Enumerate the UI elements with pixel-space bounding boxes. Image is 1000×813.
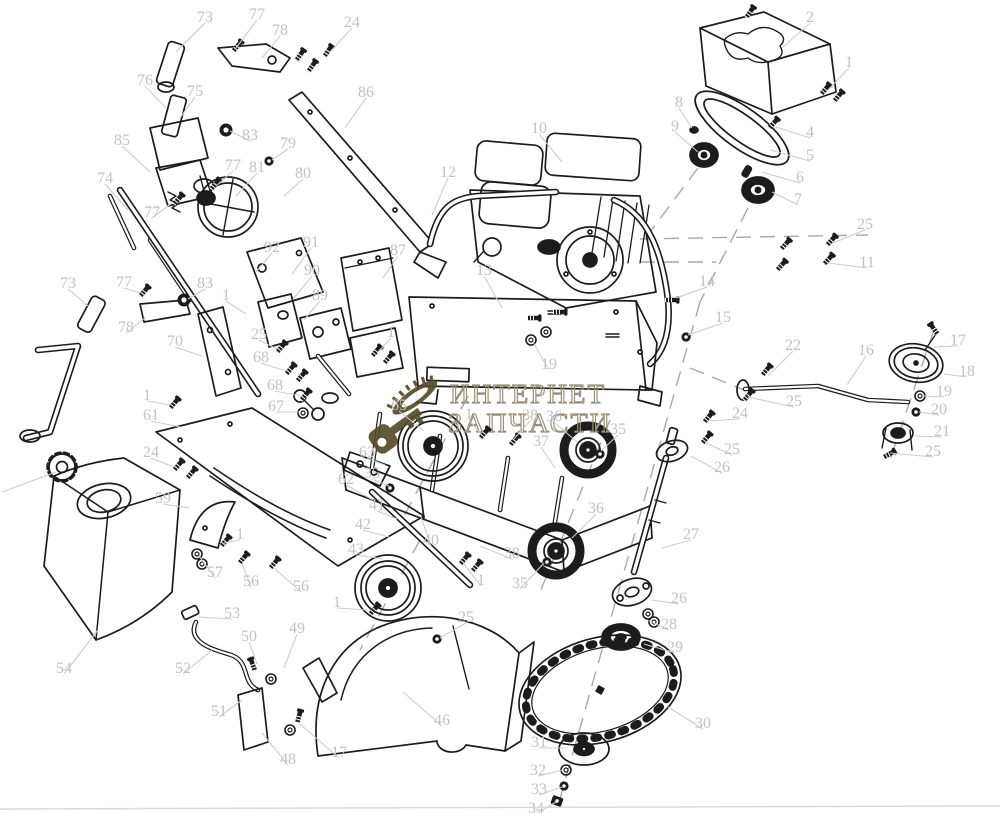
leader-line-13 [484,276,502,308]
leader-line-8 [679,108,692,128]
part-label-38: 38 [504,545,520,562]
part-label-83: 83 [197,275,213,292]
bolt-icon [774,257,789,273]
battery-box [341,248,403,377]
part-label-28: 28 [661,616,677,633]
washer-icon [526,335,536,345]
part-label-81: 81 [249,159,265,176]
part-label-91: 91 [303,234,319,251]
bolt-icon [926,321,940,337]
part-label-62: 62 [338,471,354,488]
page-edge-line [0,806,1000,809]
part-label-85: 85 [114,132,130,149]
part-label-15: 15 [715,309,731,326]
washer-icon [298,408,308,418]
part-label-1: 1 [845,54,853,71]
part-label-56: 56 [293,578,309,595]
blade-guard [303,617,534,756]
leader-line-37 [541,447,555,468]
bolt-icon [283,361,298,377]
part-label-87: 87 [390,242,406,259]
bolt-icon [701,409,716,425]
bolt-icon [293,47,307,63]
left-tow-handle [20,346,78,442]
part-label-29: 29 [667,639,683,656]
part-label-79: 79 [280,135,296,152]
bush-icon [178,294,191,307]
part-label-76: 76 [137,72,153,89]
part-label-7: 7 [794,191,802,208]
bolt-icon [778,236,793,252]
part-label-56: 56 [243,573,259,590]
bolt-icon [294,368,309,384]
nut-icon [559,781,568,790]
washer-icon [266,674,276,684]
part-label-1: 1 [222,287,230,304]
left-lower-parts [76,295,324,420]
part-label-77: 77 [116,274,132,291]
part-label-25: 25 [251,326,267,343]
part-label-90: 90 [304,262,320,279]
watermark-line1: ИНТЕРНЕТ [450,379,606,409]
nut-icon [542,557,551,566]
part-label-36: 36 [588,500,604,517]
part-label-1: 1 [477,572,485,589]
part-label-24: 24 [143,444,159,461]
part-label-86: 86 [358,84,374,101]
leader-line-4 [776,127,810,138]
part-label-34: 34 [528,800,544,813]
exploded-parts-diagram: ИНТЕРНЕТ ЗАПЧАСТИ 7377782476758685837479… [0,0,1000,813]
bolt-icon [381,350,396,366]
part-label-25: 25 [724,441,740,458]
blade-axle [602,427,690,650]
part-label-25: 25 [458,609,474,626]
part-label-4: 4 [806,124,814,141]
leader-line-22 [768,351,793,376]
leader-line-90 [294,276,312,298]
sqnut-icon [550,795,563,807]
leader-line-16 [847,356,866,385]
bolt-icon [321,43,335,59]
part-label-75: 75 [187,83,203,100]
part-label-59: 59 [155,490,171,507]
part-label-13: 13 [476,262,492,279]
part-label-26: 26 [671,590,687,607]
bolt-icon [137,283,152,299]
part-label-31: 31 [531,734,547,751]
bolt-icon [294,708,305,724]
part-label-33: 33 [531,781,547,798]
bolt-icon [824,232,839,248]
leader-line-76 [145,86,166,108]
part-label-48: 48 [280,751,296,768]
part-label-68: 68 [267,377,283,394]
part-label-77: 77 [249,6,265,23]
part-label-19: 19 [936,383,952,400]
part-label-20: 20 [931,401,947,418]
part-label-16: 16 [858,342,874,359]
part-label-41: 41 [369,497,385,514]
part-label-5: 5 [806,147,814,164]
part-label-46: 46 [434,712,450,729]
leader-line-9 [675,132,698,152]
bolt-icon [305,58,319,74]
part-label-18: 18 [959,363,975,380]
nut-icon [264,156,273,165]
part-label-22: 22 [785,337,801,354]
part-label-77: 77 [225,157,241,174]
part-label-51: 51 [211,703,227,720]
part-label-52: 52 [175,660,191,677]
bolt-icon [236,550,251,566]
leader-line-5 [770,150,810,161]
part-label-89: 89 [312,287,328,304]
bolt-icon [167,395,182,411]
part-label-25: 25 [857,216,873,233]
bolt-icon [759,362,774,378]
part-label-50: 50 [241,628,257,645]
part-label-35: 35 [364,465,380,482]
depth-control-rod [737,334,946,450]
part-label-35: 35 [610,421,626,438]
part-label-43: 43 [348,541,364,558]
part-label-25: 25 [786,393,802,410]
part-label-73: 73 [197,9,213,26]
washer-icon [541,327,551,337]
part-label-37: 37 [533,433,549,450]
part-label-1: 1 [387,324,395,341]
part-label-74: 74 [97,170,113,187]
part-label-1: 1 [236,526,244,543]
part-label-19: 19 [541,356,557,373]
part-label-32: 32 [530,762,546,779]
part-label-36: 36 [546,408,562,425]
part-label-70: 70 [167,333,183,350]
part-label-42: 42 [355,516,371,533]
bolt-icon [831,88,846,104]
part-label-1: 1 [465,406,473,423]
bolt-icon [184,465,199,481]
bolt-icon [171,457,186,473]
part-label-11: 11 [859,254,874,271]
part-label-65: 65 [391,397,407,414]
handwheel [197,176,258,237]
engine [470,133,656,308]
washer-icon [285,725,295,735]
leader-line-78 [262,36,280,58]
part-label-30: 30 [695,715,711,732]
part-label-1: 1 [333,594,341,611]
bolt-icon [369,343,384,359]
leader-line-24 [330,28,352,52]
part-label-54: 54 [56,660,72,677]
part-label-8: 8 [675,94,683,111]
part-label-61: 61 [143,407,159,424]
belt-guard-assembly [685,12,836,203]
part-label-26: 26 [714,459,730,476]
bush-icon [220,124,233,137]
part-label-1: 1 [143,387,151,404]
leader-line-49 [284,634,297,668]
part-label-78: 78 [118,319,134,336]
part-label-67: 67 [268,398,284,415]
leader-line-75 [180,97,195,118]
part-label-73: 73 [60,275,76,292]
leader-line-77 [236,20,257,48]
belt-pulley-rear [355,555,421,621]
part-label-12: 12 [440,164,456,181]
nut-icon [432,634,441,643]
part-label-80: 80 [295,165,311,182]
leader-line-36 [572,514,596,538]
part-label-57: 57 [207,564,223,581]
part-label-17: 17 [331,744,347,761]
part-label-9: 9 [671,118,679,135]
part-label-21: 21 [934,423,950,440]
part-label-35: 35 [512,575,528,592]
part-label-24: 24 [732,405,748,422]
part-label-92: 92 [264,239,280,256]
part-label-63: 63 [359,444,375,461]
part-label-38: 38 [522,407,538,424]
part-label-27: 27 [683,526,699,543]
bolt-icon [527,314,542,321]
part-label-24: 24 [344,14,360,31]
part-label-83: 83 [242,127,258,144]
part-label-49: 49 [289,620,305,637]
deflector-plate [238,688,268,750]
leader-line-73 [176,23,205,52]
part-label-40: 40 [423,532,439,549]
part-label-25: 25 [925,443,941,460]
leader-line-86 [345,98,366,128]
part-label-6: 6 [796,169,804,186]
water-tank [44,453,180,640]
nut-icon [681,332,690,341]
part-label-14: 14 [699,273,715,290]
part-label-77: 77 [144,204,160,221]
leader-line-85 [122,146,150,172]
part-label-10: 10 [531,120,547,137]
leader-line-1 [828,68,849,90]
part-label-2: 2 [806,9,814,26]
part-label-68: 68 [253,349,269,366]
nut-icon [595,449,604,458]
part-label-17: 17 [950,332,966,349]
part-label-53: 53 [224,605,240,622]
part-label-78: 78 [272,22,288,39]
